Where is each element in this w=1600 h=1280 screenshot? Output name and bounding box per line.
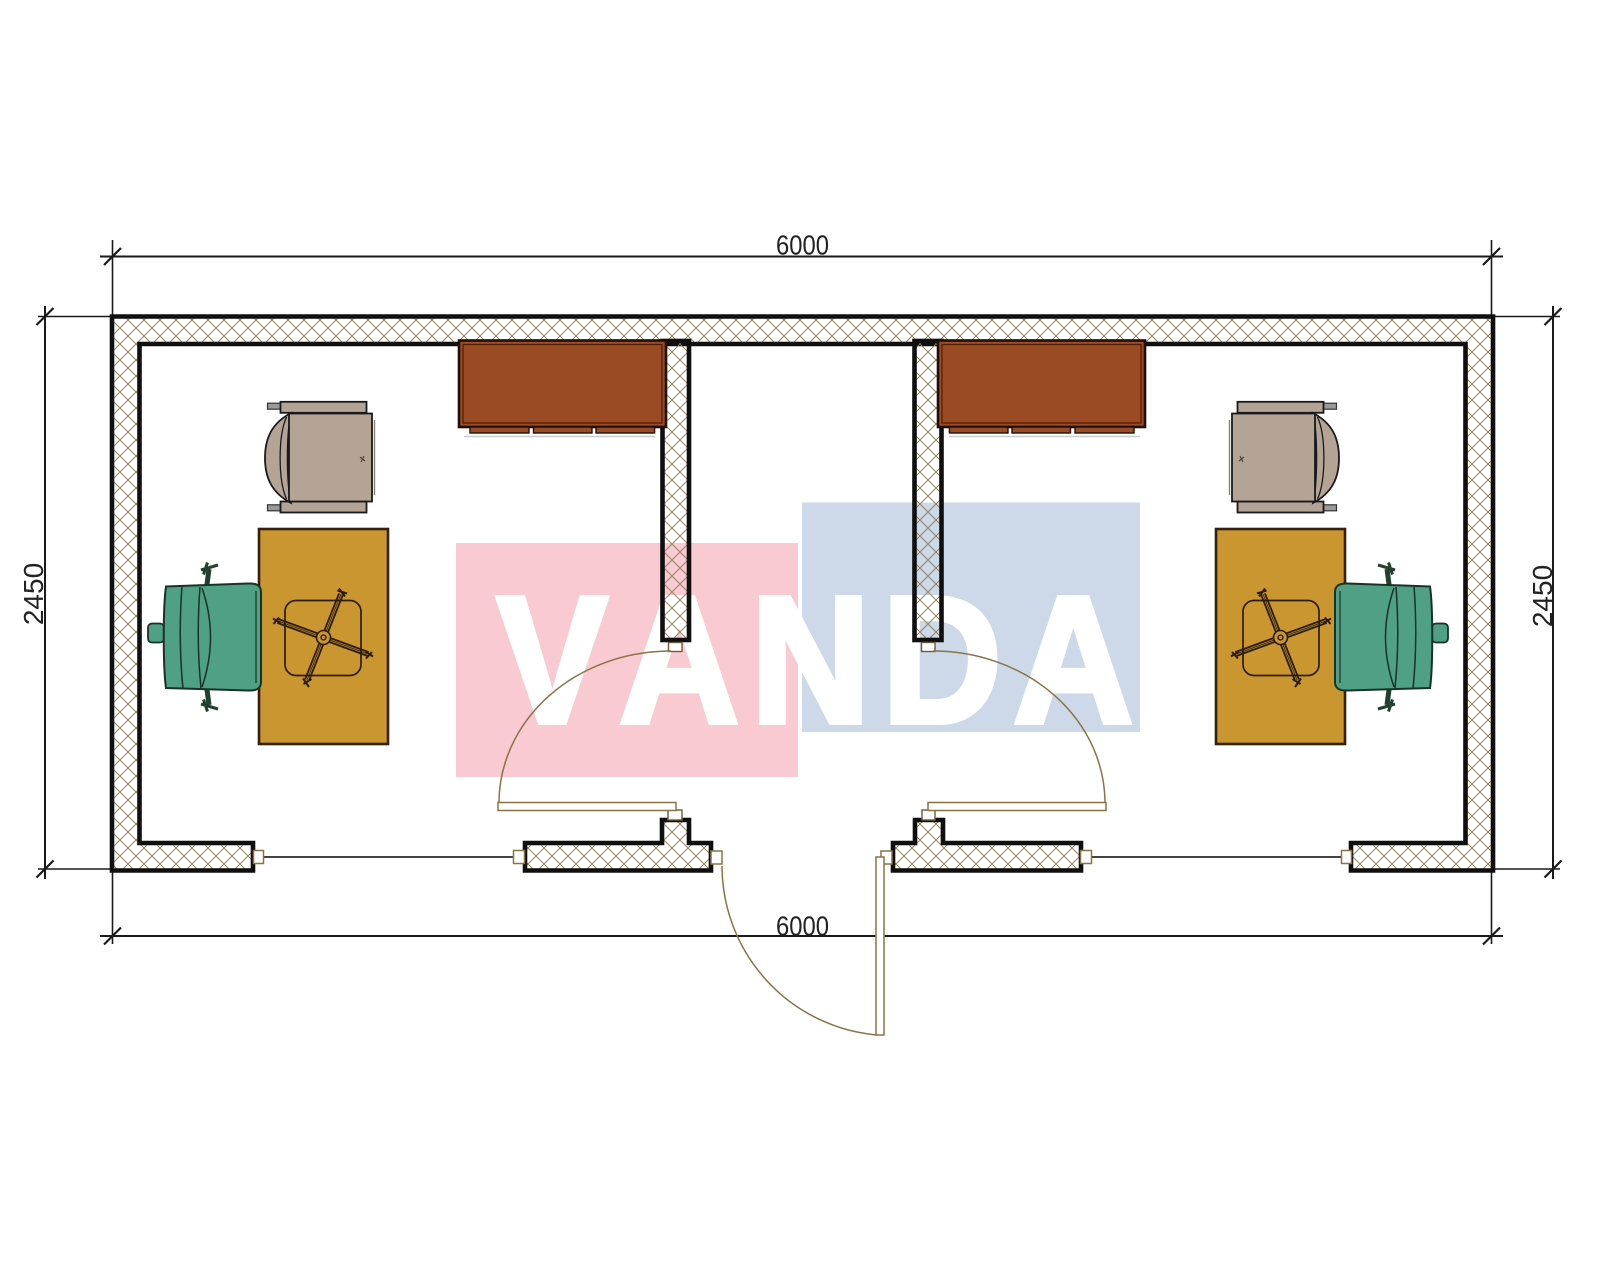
- svg-text:VANDA: VANDA: [497, 560, 1145, 761]
- svg-text:6000: 6000: [776, 229, 829, 261]
- svg-text:2450: 2450: [1527, 565, 1558, 627]
- svg-text:2450: 2450: [18, 563, 49, 625]
- svg-text:6000: 6000: [776, 910, 829, 942]
